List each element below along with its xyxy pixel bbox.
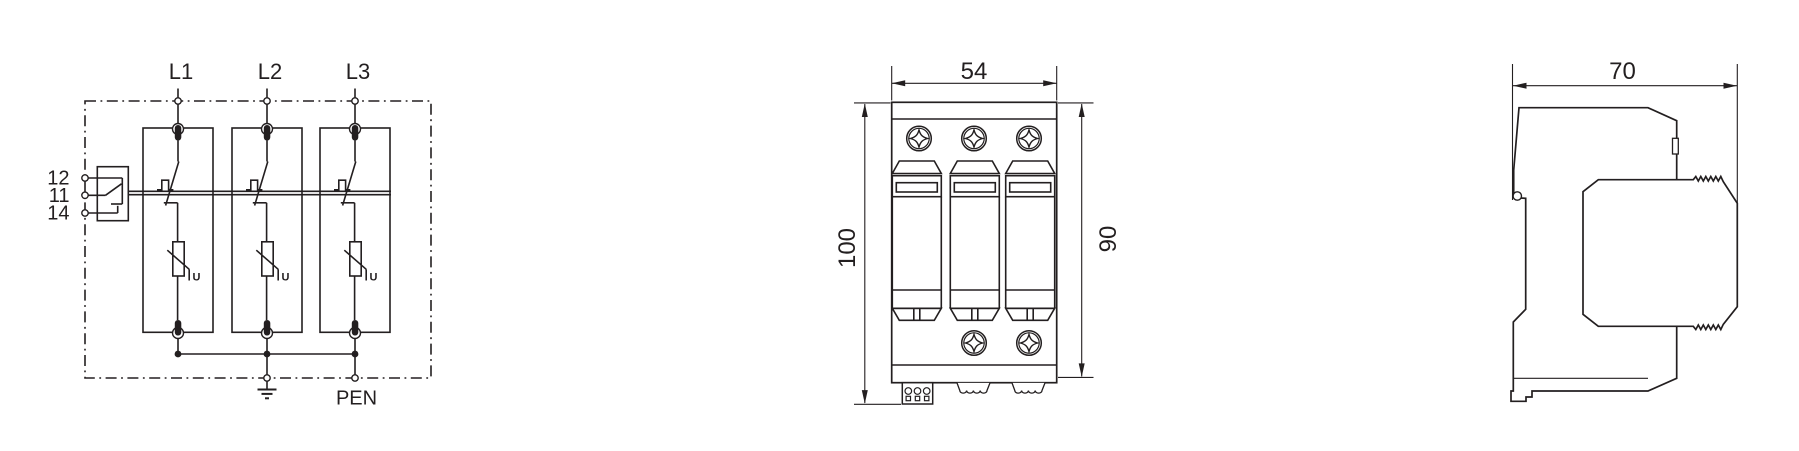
side-view: 70	[1511, 58, 1737, 401]
drawing-svg: U U U L1 L2 L3 12 11 14 PEN	[0, 0, 1799, 451]
plug-module-outline	[1583, 177, 1737, 330]
spd-module-l1: U	[143, 89, 213, 358]
din-clip-foot	[957, 383, 990, 393]
screw-icon	[1017, 126, 1042, 151]
dim-width-label: 54	[961, 58, 988, 85]
aux-terminal-14-point	[82, 210, 88, 216]
interlock-notch	[1673, 138, 1679, 154]
aux-terminal-block	[902, 383, 932, 404]
screw-icon	[962, 126, 987, 151]
aux-terminal-11-point	[82, 192, 88, 198]
technical-drawing: U U U L1 L2 L3 12 11 14 PEN	[0, 0, 1799, 451]
dim-height-body-label: 90	[1095, 226, 1122, 253]
spd-module-l2: U	[232, 89, 302, 358]
ground-crossing-point	[264, 375, 270, 381]
changeover-contact-symbol	[88, 178, 122, 213]
varistor-u-label: U	[282, 272, 290, 284]
dim-depth-label: 70	[1609, 58, 1636, 85]
mechanical-linkage-line	[128, 191, 391, 194]
varistor-u-label: U	[193, 272, 201, 284]
pen-label: PEN	[336, 388, 377, 410]
front-view: 54 100 90	[834, 58, 1122, 404]
screw-icon	[962, 331, 987, 356]
phase-label-l1: L1	[169, 59, 193, 84]
dim-width-54: 54	[892, 58, 1057, 101]
dim-height-90: 90	[1058, 103, 1122, 378]
dim-height-total-label: 100	[834, 228, 861, 268]
screw-icon	[907, 126, 932, 151]
phase-label-l2: L2	[258, 59, 282, 84]
ground-symbol	[258, 381, 277, 398]
aux-terminal-12-point	[82, 175, 88, 181]
screw-icon	[1017, 331, 1042, 356]
earth-bus	[178, 354, 358, 381]
spd-module-l3: U	[320, 89, 390, 358]
pivot-hole	[1513, 192, 1521, 200]
varistor-u-label: U	[370, 272, 378, 284]
pen-crossing-point	[352, 375, 358, 381]
remote-signal-contact	[82, 167, 129, 221]
phase-label-l3: L3	[346, 59, 370, 84]
equipment-boundary	[85, 101, 431, 378]
circuit-diagram: U U U L1 L2 L3 12 11 14 PEN	[47, 59, 431, 410]
din-clip-foot	[1012, 383, 1045, 393]
aux-terminal-label-14: 14	[47, 203, 69, 225]
